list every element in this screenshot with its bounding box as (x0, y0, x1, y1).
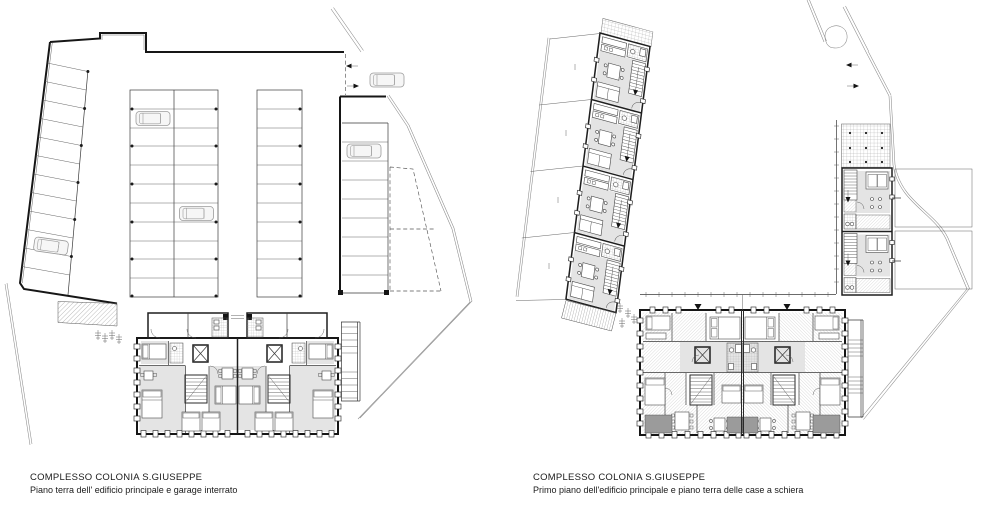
parking-bank-center (130, 90, 218, 298)
duplex-block (842, 124, 895, 295)
parking-bank-east (257, 90, 302, 298)
external-stair (341, 322, 360, 401)
garage-entrance-lane (346, 54, 405, 95)
caption-ground-floor-subtitle: Piano terra dell' edificio principale e … (30, 484, 237, 497)
main-building-first-floor (637, 295, 848, 438)
plan-ground-floor-garage (5, 8, 472, 446)
upper-floor-dashed-outline (390, 167, 441, 291)
garage-walls (20, 33, 344, 304)
garage-ramp (58, 302, 117, 327)
courtyard (640, 120, 839, 297)
main-building-ground-floor (134, 313, 341, 437)
caption-first-floor: COMPLESSO COLONIA S.GIUSEPPE Primo piano… (533, 471, 803, 497)
external-stair (848, 320, 863, 417)
caption-ground-floor-title: COMPLESSO COLONIA S.GIUSEPPE (30, 471, 237, 484)
entrance-arrows (846, 63, 859, 89)
caption-first-floor-subtitle: Primo piano dell'edificio principale e p… (533, 484, 803, 497)
parking-row-east-wall (338, 97, 389, 296)
drawing-sheet: { "sheet": { "background": "#ffffff", "i… (0, 0, 994, 513)
terraced-row (564, 17, 654, 313)
caption-first-floor-title: COMPLESSO COLONIA S.GIUSEPPE (533, 471, 803, 484)
plan-first-floor (516, 0, 972, 438)
floor-plans-svg (0, 0, 994, 513)
caption-ground-floor: COMPLESSO COLONIA S.GIUSEPPE Piano terra… (30, 471, 237, 497)
duplex-gardens (892, 169, 972, 289)
